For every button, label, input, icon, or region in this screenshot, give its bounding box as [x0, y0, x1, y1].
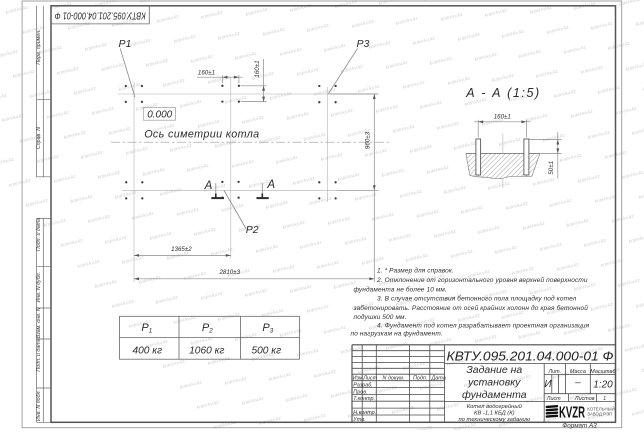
svg-text:960±3: 960±3 — [364, 131, 371, 149]
svg-text:160±1: 160±1 — [494, 114, 511, 121]
svg-text:КВТУ.095.201.04.000-01 Ф: КВТУ.095.201.04.000-01 Ф — [447, 348, 614, 363]
svg-text:P2: P2 — [246, 224, 259, 236]
svg-text:500 кг: 500 кг — [251, 345, 281, 356]
svg-text:A: A — [204, 180, 213, 192]
svg-text:И: И — [544, 379, 552, 390]
svg-text:КВ -1,1 КБД (К): КВ -1,1 КБД (К) — [474, 410, 515, 416]
svg-text:фундамента не более 10 мм.: фундамента не более 10 мм. — [354, 285, 448, 293]
svg-text:по техническому заданию: по техническому заданию — [458, 417, 530, 423]
svg-text:Т.контр.: Т.контр. — [353, 396, 375, 402]
svg-text:2810±3: 2810±3 — [218, 269, 240, 276]
svg-text:1060 кг: 1060 кг — [189, 345, 224, 356]
svg-text:Подп. и дата: Подп. и дата — [36, 338, 42, 371]
svg-text:400 кг: 400 кг — [132, 345, 162, 356]
svg-text:50±1: 50±1 — [548, 161, 555, 175]
svg-text:Формат А3: Формат А3 — [562, 422, 597, 429]
svg-text:N докум.: N докум. — [383, 375, 405, 381]
svg-text:ЗАВОД РЭП: ЗАВОД РЭП — [587, 412, 612, 417]
svg-text:Ось симетрии котла: Ось симетрии котла — [144, 129, 259, 141]
svg-text:Лист: Лист — [362, 375, 377, 381]
svg-text:Масштаб: Масштаб — [590, 369, 616, 375]
svg-text:160±1: 160±1 — [198, 70, 215, 77]
svg-text:1. * Размер для справок.: 1. * Размер для справок. — [377, 266, 454, 274]
svg-text:КВТУ.095.201.04.000-01 Ф: КВТУ.095.201.04.000-01 Ф — [55, 9, 146, 20]
svg-text:160±1: 160±1 — [254, 60, 261, 77]
svg-text:2. Отклонение от горизонтально: 2. Отклонение от горизонтального уровня … — [376, 276, 588, 284]
svg-text:Котел водогрейный: Котел водогрейный — [467, 403, 523, 410]
svg-text:1: 1 — [603, 396, 606, 402]
svg-text:забетонировать. Расстояние от: забетонировать. Расстояние от осей крайн… — [353, 304, 589, 312]
svg-text:A: A — [266, 179, 275, 191]
svg-text:4. Фундамент под котел разраба: 4. Фундамент под котел разрабатывает про… — [377, 321, 590, 329]
svg-text:Лит.: Лит. — [547, 369, 561, 375]
svg-text:Взам. инв. N: Взам. инв. N — [36, 307, 42, 338]
svg-text:Задание на: Задание на — [466, 364, 522, 376]
svg-text:Листов: Листов — [574, 396, 595, 402]
svg-text:по нагрузкам на фундамент.: по нагрузкам на фундамент. — [351, 330, 443, 338]
svg-text:установку: установку — [467, 377, 521, 389]
svg-text:Масса: Масса — [570, 369, 586, 375]
svg-text:–: – — [574, 378, 581, 389]
svg-text:Дата: Дата — [431, 375, 446, 381]
svg-text:подушки 500 мм.: подушки 500 мм. — [354, 313, 407, 321]
svg-text:Подп. и дата: Подп. и дата — [36, 218, 42, 251]
svg-text:Инв. N дубл.: Инв. N дубл. — [36, 272, 42, 303]
svg-text:Пров.: Пров. — [353, 389, 367, 395]
svg-text:фундамента: фундамента — [462, 389, 527, 401]
svg-text:Утв.: Утв. — [352, 417, 365, 423]
svg-text:KVZR: KVZR — [559, 404, 585, 421]
svg-text:Подп.: Подп. — [413, 375, 427, 381]
svg-text:1365±2: 1365±2 — [171, 246, 192, 253]
svg-text:3. В случае отсутствия бетонно: 3. В случае отсутствия бетонного пола пл… — [377, 295, 577, 303]
svg-text:Н.контр.: Н.контр. — [353, 410, 376, 416]
svg-text:0.000: 0.000 — [147, 110, 172, 121]
svg-text:P1: P1 — [119, 38, 132, 50]
svg-text:Лист: Лист — [546, 396, 561, 402]
svg-text:А - А (1:5): А - А (1:5) — [465, 86, 541, 100]
svg-text:Разраб.: Разраб. — [353, 382, 373, 388]
svg-text:Справ. N: Справ. N — [36, 127, 42, 149]
svg-text:Перв. примен.: Перв. примен. — [36, 29, 42, 64]
svg-text:P3: P3 — [357, 38, 370, 50]
svg-text:1:20: 1:20 — [593, 379, 613, 390]
svg-text:Инв. N подл.: Инв. N подл. — [36, 390, 42, 421]
